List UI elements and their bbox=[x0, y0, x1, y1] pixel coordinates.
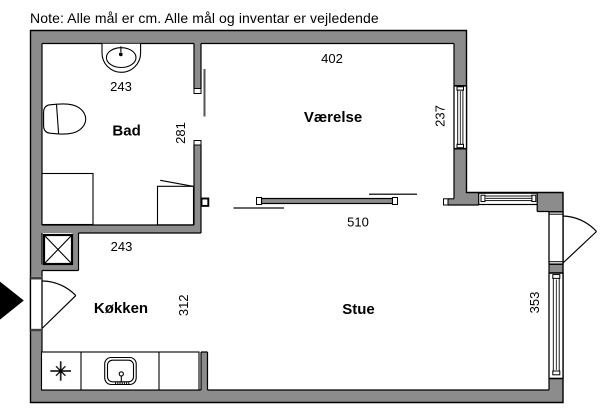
svg-text:353: 353 bbox=[527, 292, 542, 314]
svg-text:243: 243 bbox=[110, 79, 132, 94]
svg-text:243: 243 bbox=[111, 239, 133, 254]
svg-text:Værelse: Værelse bbox=[304, 109, 362, 126]
svg-text:237: 237 bbox=[433, 105, 448, 127]
svg-text:Bad: Bad bbox=[112, 123, 140, 140]
svg-text:281: 281 bbox=[173, 122, 188, 144]
svg-text:Køkken: Køkken bbox=[94, 300, 148, 317]
svg-text:402: 402 bbox=[321, 51, 343, 66]
svg-text:510: 510 bbox=[347, 215, 369, 230]
svg-text:312: 312 bbox=[176, 294, 191, 316]
svg-text:Stue: Stue bbox=[342, 301, 375, 318]
